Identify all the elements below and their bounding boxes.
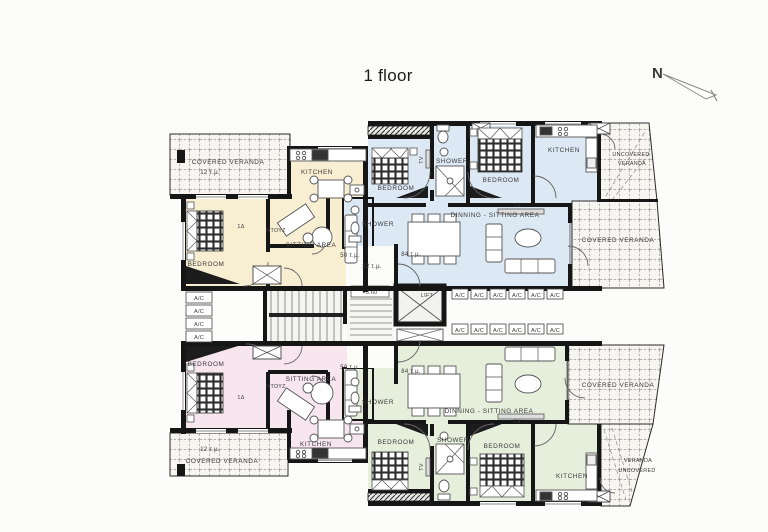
label-br-bedroom2: BEDROOM [484,443,521,450]
label-tl-veranda: COVERED VERANDA [192,159,265,166]
label-tl-sitting: SITTING AREA [286,242,337,249]
ac-label: A/C [194,296,204,302]
label-br-shower2: SHOWER [437,437,469,444]
bed-tr-1 [372,148,408,184]
label-bl-veranda: COVERED VERANDA [186,458,259,465]
ac-label: A/C [531,328,541,334]
label-bl-veranda-area: 12 τ.μ. [200,447,220,453]
label-bl-bedroom: BEDROOM [188,361,225,368]
ac-label: A/C [474,293,484,299]
label-tr-shower2: SHOWER [362,221,394,228]
ac-label: A/C [455,293,465,299]
bed-br-2 [480,454,524,497]
label-br-bedroom1: BEDROOM [378,439,415,446]
label-br-living: DINNING - SITTING AREA [445,408,534,415]
label-br-covered: COVERED VERANDA [582,382,655,389]
label-br-uncovered-1: VERANDA [624,458,652,464]
bed-br-1 [372,452,408,490]
stair-rail [269,313,343,317]
label-bl-area: 50 τ.μ. [340,365,360,371]
label-tr-covered: COVERED VERANDA [582,237,655,244]
floor-plan-page: 1 floor KASIS N [0,0,768,532]
label-tr-bedroom2: BEDROOM [483,177,520,184]
label-tl-bedroom: BEDROOM [188,261,225,268]
ac-label: A/C [512,328,522,334]
label-tl-veranda-area: 12 τ.μ. [200,170,220,176]
apt-bl-covered-veranda [170,433,288,476]
north-arrow: N [652,65,717,101]
label-tr-living: DINNING - SITTING AREA [451,212,540,219]
ac-label: A/C [512,293,522,299]
ac-label: A/C [455,328,465,334]
label-br-shower1: SHOWER [362,399,394,406]
label-bl-shower: ΝΤΟΥΖ [266,384,286,390]
ac-label: A/C [531,293,541,299]
ac-label: A/C [194,309,204,315]
bed-top-left [187,211,223,251]
label-tl-shower: ΝΤΟΥΖ [266,228,286,234]
label-tl-hall: 1Δ [237,224,244,230]
lift: LIFT [396,286,444,341]
label-bl-hall: 1Δ [237,395,244,401]
core: +3.60 LIFT [184,286,444,341]
floor-plan-drawing: 1 floor KASIS N [0,0,768,532]
label-tr-shower1: SHOWER [436,158,468,165]
label-bl-sitting: SITTING AREA [286,376,337,383]
label-br-area: 84 τ.μ. [401,369,421,375]
ac-label: A/C [550,328,560,334]
ac-label: A/C [493,293,503,299]
ac-label: A/C [194,322,204,328]
page-title: 1 floor [363,66,412,85]
label-tr-area: 84 τ.μ. [401,252,421,258]
label-tr-bedroom1: BEDROOM [378,185,415,192]
north-label: N [652,65,663,82]
label-tl-area: 50 τ.μ. [340,253,360,259]
label-tr-tv: TV [513,203,521,209]
lift-label: LIFT [421,293,434,299]
apt-tr-covered-veranda [572,201,664,288]
ac-label: A/C [194,335,204,341]
compass-needle-icon [663,74,716,99]
ac-label: A/C [474,328,484,334]
ac-label: A/C [550,293,560,299]
label-core-lobby-area: 22 τ.μ. [362,264,382,270]
label-tr-tv-bedroom: TV [419,156,425,164]
label-tl-kitchen: KITCHEN [301,169,333,176]
label-br-tv-bedroom: TV [419,463,425,471]
label-br-tv: TV [513,419,521,425]
ac-label: A/C [493,328,503,334]
bed-bottom-left [187,373,223,413]
bed-tr-2 [478,128,522,172]
label-bl-kitchen: KITCHEN [300,441,332,448]
label-br-kitchen: KITCHEN [556,473,588,480]
label-br-uncovered-2: UNCOVERED [618,468,655,474]
label-tr-uncovered-1: UNCOVERED [612,152,649,158]
label-tr-uncovered-2: VERANDA [618,161,646,167]
entrance-corridor [347,291,394,341]
label-tr-kitchen: KITCHEN [548,147,580,154]
